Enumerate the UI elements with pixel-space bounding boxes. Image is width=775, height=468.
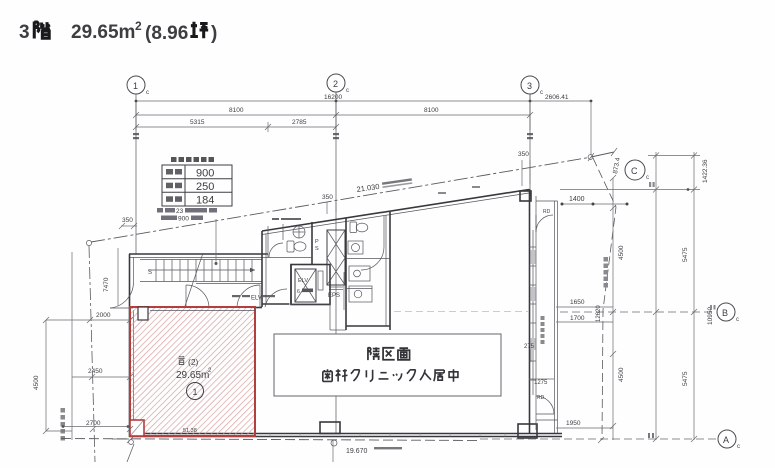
svg-text:c: c	[646, 175, 649, 181]
svg-text:c: c	[540, 90, 543, 96]
svg-text:4500: 4500	[33, 375, 40, 390]
svg-text:7470: 7470	[103, 277, 110, 292]
svg-text:1: 1	[133, 81, 138, 91]
svg-text:(2): (2)	[188, 357, 199, 367]
svg-text:250: 250	[196, 181, 214, 193]
svg-text:23: 23	[176, 208, 184, 215]
svg-text:1650: 1650	[570, 299, 585, 306]
svg-text:1: 1	[193, 387, 198, 397]
svg-text:51.38: 51.38	[183, 428, 197, 434]
svg-text:5475: 5475	[682, 371, 689, 386]
svg-text:c: c	[737, 444, 740, 450]
svg-text:8100: 8100	[424, 107, 439, 114]
svg-text:EPS: EPS	[328, 293, 340, 299]
svg-text:c: c	[146, 90, 149, 96]
svg-text:1400: 1400	[569, 196, 585, 203]
svg-text:C: C	[631, 166, 638, 176]
svg-text:2700: 2700	[86, 420, 101, 427]
svg-text:8100: 8100	[229, 107, 244, 114]
svg-text:RD: RD	[543, 209, 551, 215]
svg-text:A: A	[723, 435, 729, 445]
svg-text:2: 2	[333, 79, 338, 89]
svg-text:S: S	[148, 270, 152, 276]
svg-text:2785: 2785	[292, 119, 307, 126]
svg-text:c: c	[346, 88, 349, 94]
svg-text:3: 3	[527, 81, 532, 91]
svg-text:16200: 16200	[324, 94, 342, 101]
svg-text:(8.96: (8.96	[145, 23, 188, 44]
svg-text:350: 350	[322, 194, 333, 201]
svg-text:19.670: 19.670	[346, 448, 368, 455]
svg-text:1700: 1700	[570, 315, 585, 322]
svg-text:2606.41: 2606.41	[545, 94, 569, 101]
svg-text:3: 3	[19, 22, 30, 43]
svg-text:S: S	[315, 246, 319, 252]
svg-text:1950: 1950	[566, 420, 581, 427]
svg-text:4500: 4500	[618, 367, 625, 382]
svg-text:900: 900	[178, 216, 189, 223]
svg-text:900: 900	[196, 168, 214, 180]
svg-text:350: 350	[518, 151, 529, 158]
svg-text:2000: 2000	[96, 312, 111, 319]
svg-text:ELV: ELV	[298, 278, 308, 284]
svg-text:P: P	[315, 239, 319, 245]
svg-text:350: 350	[122, 217, 133, 224]
svg-text:6: 6	[297, 289, 300, 295]
svg-text:29.65m: 29.65m	[71, 22, 135, 43]
svg-text:B: B	[722, 308, 728, 318]
svg-text:5475: 5475	[682, 247, 689, 262]
svg-text:184: 184	[196, 195, 214, 207]
svg-text:1422.36: 1422.36	[702, 159, 709, 183]
svg-text:1275: 1275	[534, 380, 548, 386]
svg-text:5315: 5315	[190, 119, 205, 126]
svg-text:275: 275	[524, 344, 535, 350]
svg-text:2: 2	[135, 19, 142, 33]
svg-text:c: c	[736, 317, 739, 323]
svg-text:ELV: ELV	[251, 296, 262, 302]
svg-text:2450: 2450	[88, 368, 103, 375]
svg-text:): )	[211, 23, 217, 44]
svg-text:4500: 4500	[618, 245, 625, 260]
svg-text:29.65m: 29.65m	[176, 370, 209, 381]
